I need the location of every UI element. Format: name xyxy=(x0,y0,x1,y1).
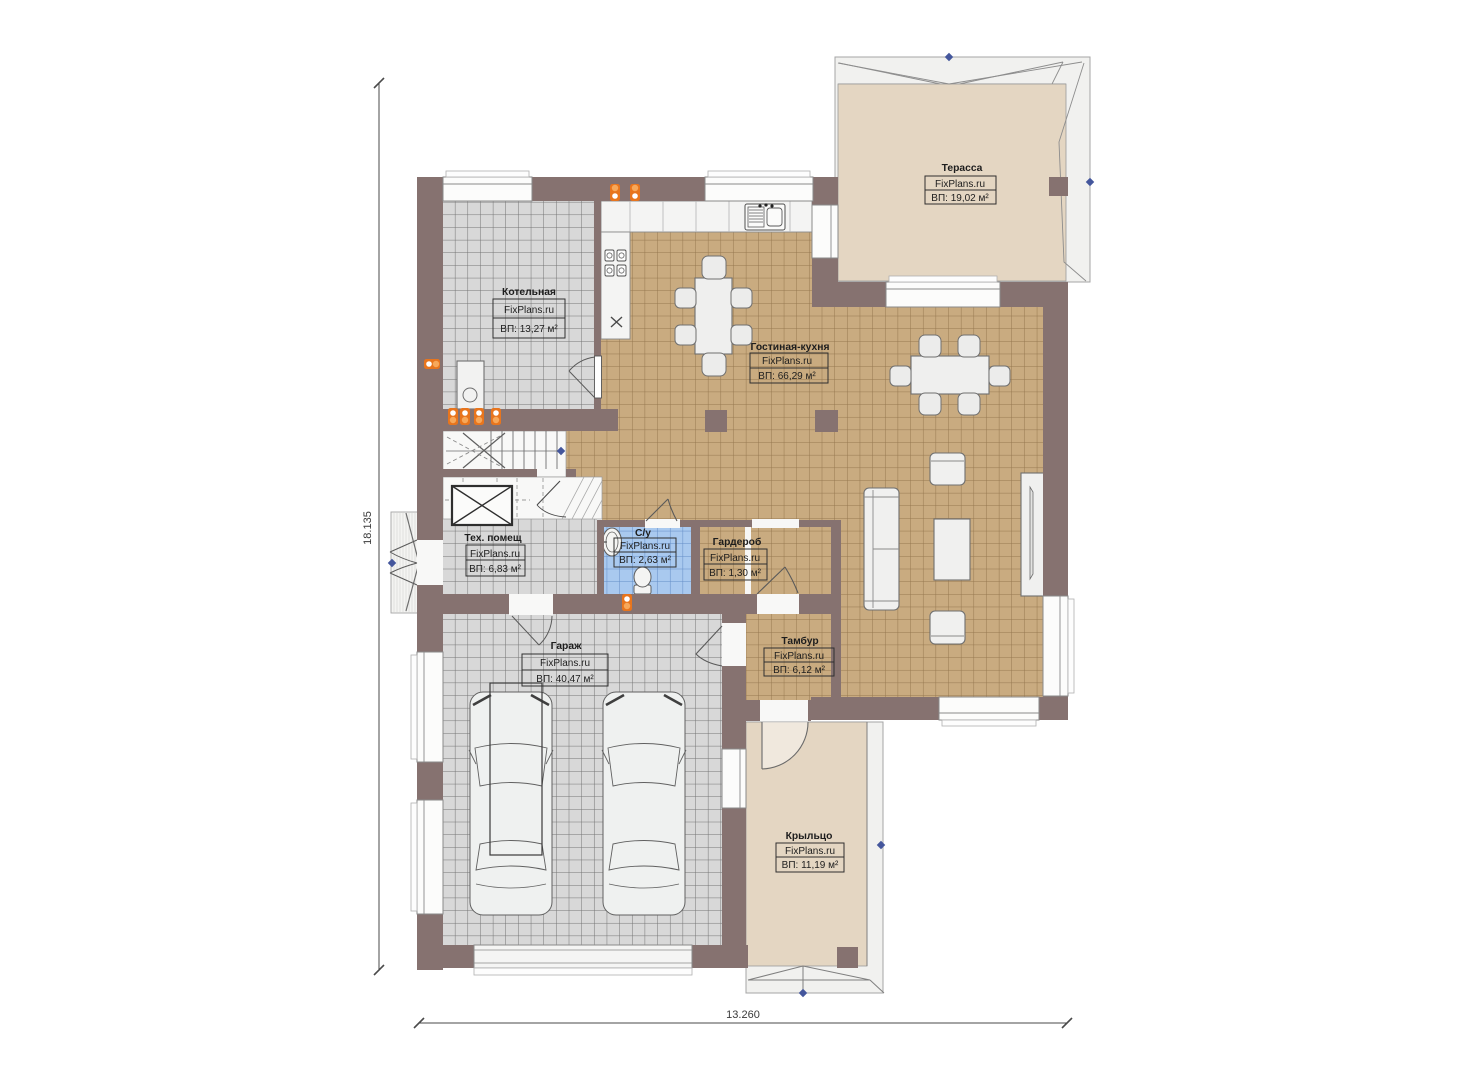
svg-text:Терасса: Терасса xyxy=(942,163,983,174)
svg-text:ВП: 6,83 м²: ВП: 6,83 м² xyxy=(469,564,522,575)
svg-text:ВП: 1,30 м²: ВП: 1,30 м² xyxy=(709,568,762,579)
svg-text:Гардероб: Гардероб xyxy=(713,536,762,548)
svg-text:FixPlans.ru: FixPlans.ru xyxy=(540,658,590,669)
svg-text:Тех. помещ: Тех. помещ xyxy=(464,533,522,544)
svg-text:18.135: 18.135 xyxy=(362,511,374,545)
svg-text:13.260: 13.260 xyxy=(726,1009,760,1021)
svg-text:ВП: 19,02 м²: ВП: 19,02 м² xyxy=(931,193,989,204)
svg-text:Тамбур: Тамбур xyxy=(781,635,818,647)
svg-text:FixPlans.ru: FixPlans.ru xyxy=(762,356,812,367)
svg-text:ВП: 6,12 м²: ВП: 6,12 м² xyxy=(773,665,826,676)
svg-text:FixPlans.ru: FixPlans.ru xyxy=(710,553,760,564)
svg-text:ВП: 13,27 м²: ВП: 13,27 м² xyxy=(500,324,558,335)
svg-text:FixPlans.ru: FixPlans.ru xyxy=(774,651,824,662)
svg-text:Крыльцо: Крыльцо xyxy=(786,831,833,842)
svg-text:FixPlans.ru: FixPlans.ru xyxy=(470,549,520,560)
svg-text:ВП: 40,47 м²: ВП: 40,47 м² xyxy=(536,674,594,685)
svg-text:ВП: 66,29 м²: ВП: 66,29 м² xyxy=(758,371,816,382)
svg-text:FixPlans.ru: FixPlans.ru xyxy=(935,179,985,190)
svg-text:FixPlans.ru: FixPlans.ru xyxy=(620,541,670,552)
svg-text:ВП: 2,63 м²: ВП: 2,63 м² xyxy=(619,555,672,566)
svg-text:FixPlans.ru: FixPlans.ru xyxy=(785,846,835,857)
svg-text:ВП: 11,19 м²: ВП: 11,19 м² xyxy=(782,860,839,871)
svg-text:Гараж: Гараж xyxy=(551,641,582,652)
svg-text:FixPlans.ru: FixPlans.ru xyxy=(504,305,554,316)
svg-text:Котельная: Котельная xyxy=(502,287,556,298)
svg-text:Гостиная-кухня: Гостиная-кухня xyxy=(751,342,830,353)
svg-text:С/у: С/у xyxy=(635,528,651,539)
